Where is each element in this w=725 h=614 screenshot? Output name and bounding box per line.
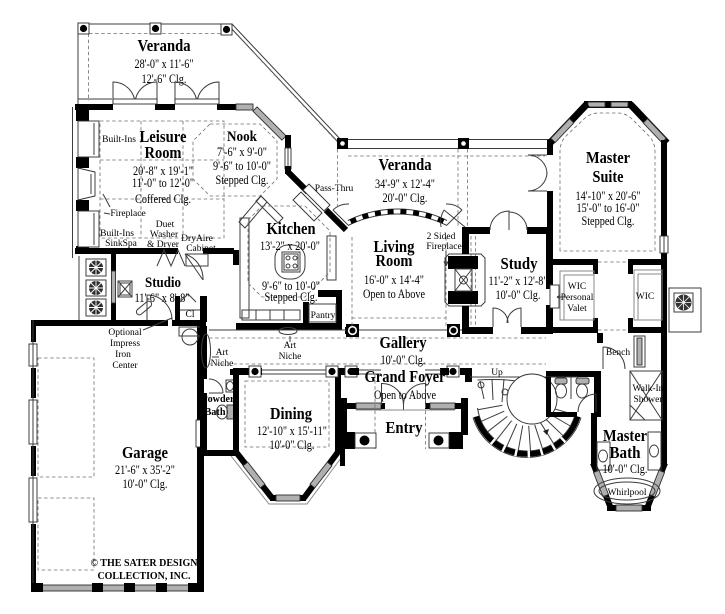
svg-text:Fireplace: Fireplace [426,242,461,252]
svg-text:28'-0" x 11'-6": 28'-0" x 11'-6" [135,56,194,71]
svg-text:& Dryer: & Dryer [147,240,180,250]
svg-text:Niche: Niche [279,352,302,362]
svg-text:Stepped Clg.: Stepped Clg. [265,289,318,304]
svg-text:Dining: Dining [270,404,312,423]
svg-text:Valet: Valet [567,304,587,314]
svg-text:7'-6" x 9'-0": 7'-6" x 9'-0" [217,144,267,159]
svg-text:Stepped Clg.: Stepped Clg. [216,172,269,187]
svg-text:Built-Ins: Built-Ins [102,135,136,145]
svg-text:Veranda: Veranda [379,155,432,174]
svg-text:Grand Foyer: Grand Foyer [365,367,446,386]
svg-text:SinkSpa: SinkSpa [105,239,137,249]
svg-text:Pantry: Pantry [311,311,336,321]
svg-text:Coffered Clg.: Coffered Clg. [135,191,191,206]
svg-text:Nook: Nook [227,129,258,145]
svg-text:20'-0" Clg.: 20'-0" Clg. [383,190,428,205]
svg-text:Gallery: Gallery [380,333,427,352]
svg-text:Pass-Thru: Pass-Thru [315,184,354,194]
svg-text:11'-0" to 12'-0": 11'-0" to 12'-0" [132,175,194,190]
svg-text:11'-6" x 8'-8": 11'-6" x 8'-8" [135,290,190,305]
svg-text:12'-10" x 15'-11": 12'-10" x 15'-11" [257,423,327,438]
svg-text:Bath: Bath [610,443,641,462]
svg-text:16'-0" x 14'-4": 16'-0" x 14'-4" [364,272,424,287]
svg-text:10'-0" Clg.: 10'-0" Clg. [381,352,426,367]
svg-text:Built-Ins: Built-Ins [100,229,134,239]
svg-text:WIC: WIC [568,282,586,292]
svg-text:9'-6" to 10'-0": 9'-6" to 10'-0" [213,158,271,173]
svg-text:© THE SATER DESIGN: © THE SATER DESIGN [91,557,198,569]
svg-text:Whirlpool: Whirlpool [607,488,646,498]
svg-text:10'-0" Clg.: 10'-0" Clg. [496,287,541,302]
svg-text:Room: Room [376,251,413,270]
svg-text:Garage: Garage [122,443,168,462]
svg-text:Entry: Entry [386,418,423,437]
svg-text:Powder: Powder [202,393,235,405]
svg-text:Fireplace: Fireplace [110,209,145,219]
svg-text:Center: Center [112,361,138,371]
svg-text:WIC: WIC [636,292,654,302]
svg-text:Iron: Iron [115,350,131,360]
svg-text:Shower: Shower [633,395,663,405]
svg-text:Kitchen: Kitchen [267,219,316,238]
svg-text:Art: Art [284,341,297,351]
svg-text:Cabinet: Cabinet [186,244,216,254]
svg-text:Duet: Duet [156,220,175,230]
svg-text:34'-9" x 12'-4": 34'-9" x 12'-4" [375,176,435,191]
svg-text:Up: Up [491,368,503,378]
svg-text:10'-0" Clg.: 10'-0" Clg. [603,461,648,476]
svg-text:Open to Above: Open to Above [374,387,436,402]
svg-text:10'-0" Clg.: 10'-0" Clg. [270,437,315,452]
svg-text:10'-0" Clg.: 10'-0" Clg. [123,476,168,491]
svg-text:Studio: Studio [145,275,181,291]
svg-text:Walk-In: Walk-In [633,384,664,394]
svg-text:13'-2" x 20'-0": 13'-2" x 20'-0" [260,238,320,253]
svg-text:Bath: Bath [205,406,226,418]
svg-text:Room: Room [145,143,182,162]
svg-text:Optional: Optional [108,328,142,338]
svg-text:Personal: Personal [561,293,594,303]
svg-text:DryAire: DryAire [181,234,213,244]
svg-text:Study: Study [501,254,538,273]
svg-text:Impress: Impress [110,339,140,349]
svg-text:Open to Above: Open to Above [363,286,425,301]
svg-text:Stepped Clg.: Stepped Clg. [582,213,635,228]
svg-text:Veranda: Veranda [138,36,191,55]
svg-text:2 Sided: 2 Sided [427,232,456,242]
svg-text:21'-6" x 35'-2": 21'-6" x 35'-2" [115,462,175,477]
svg-text:Suite: Suite [593,167,624,186]
svg-text:Washer: Washer [150,230,179,240]
svg-text:Cl: Cl [186,310,195,320]
svg-text:Master: Master [586,148,630,167]
svg-text:COLLECTION, INC.: COLLECTION, INC. [98,570,191,582]
svg-text:11'-2" x 12'-8": 11'-2" x 12'-8" [489,273,548,288]
